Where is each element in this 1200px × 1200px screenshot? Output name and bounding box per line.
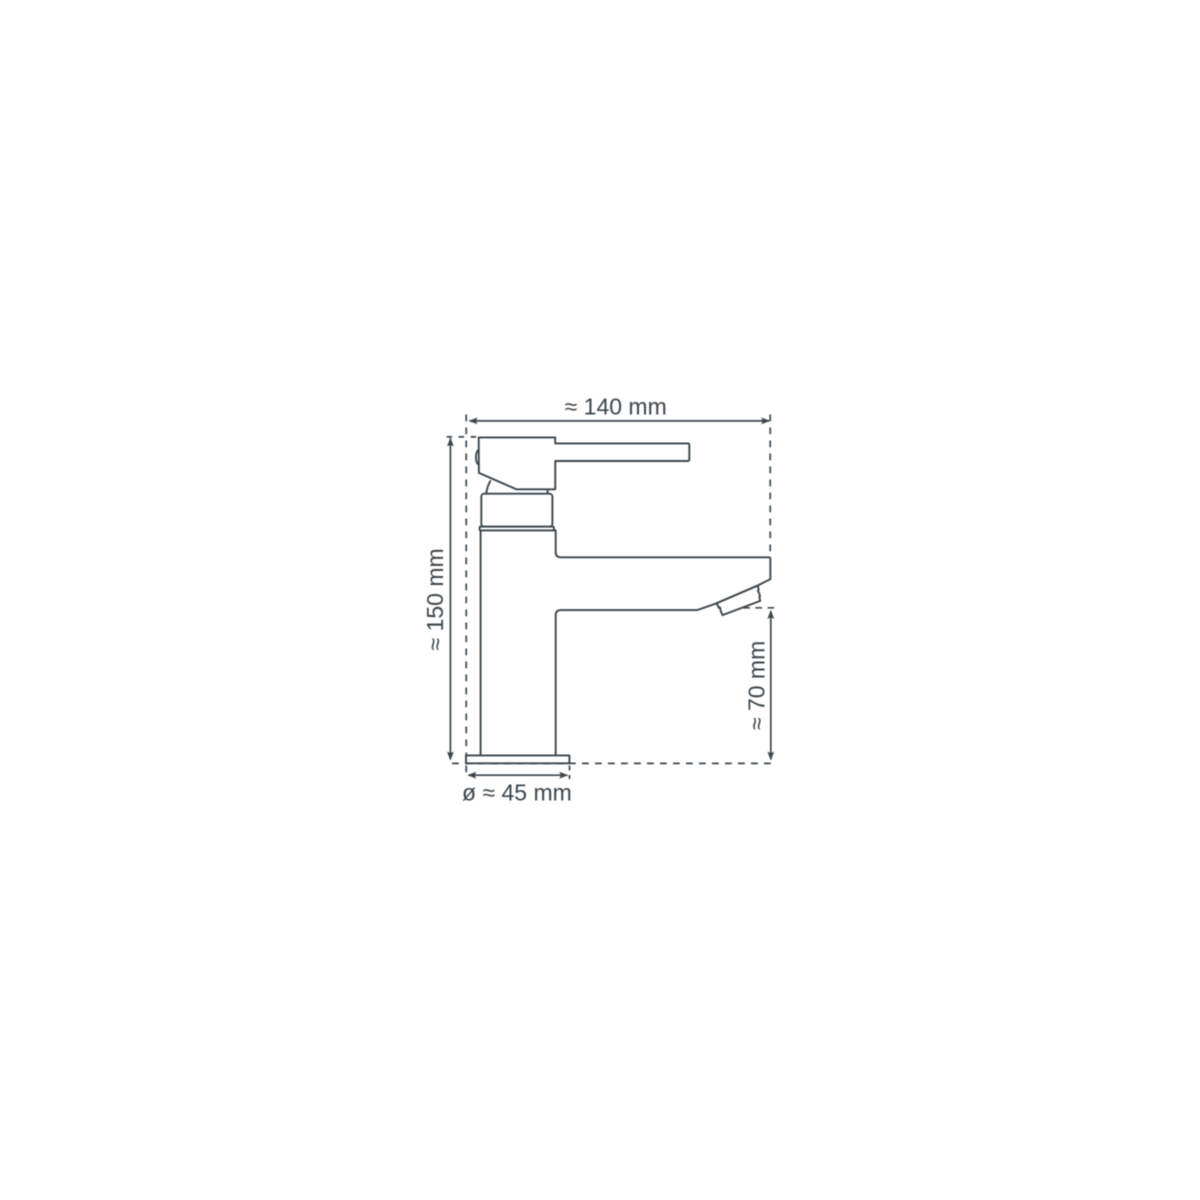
svg-text:≈ 140 mm: ≈ 140 mm bbox=[565, 393, 667, 419]
svg-text:ø ≈ 45 mm: ø ≈ 45 mm bbox=[462, 779, 572, 805]
svg-text:≈ 150 mm: ≈ 150 mm bbox=[422, 548, 448, 650]
svg-text:≈ 70 mm: ≈ 70 mm bbox=[743, 641, 769, 730]
